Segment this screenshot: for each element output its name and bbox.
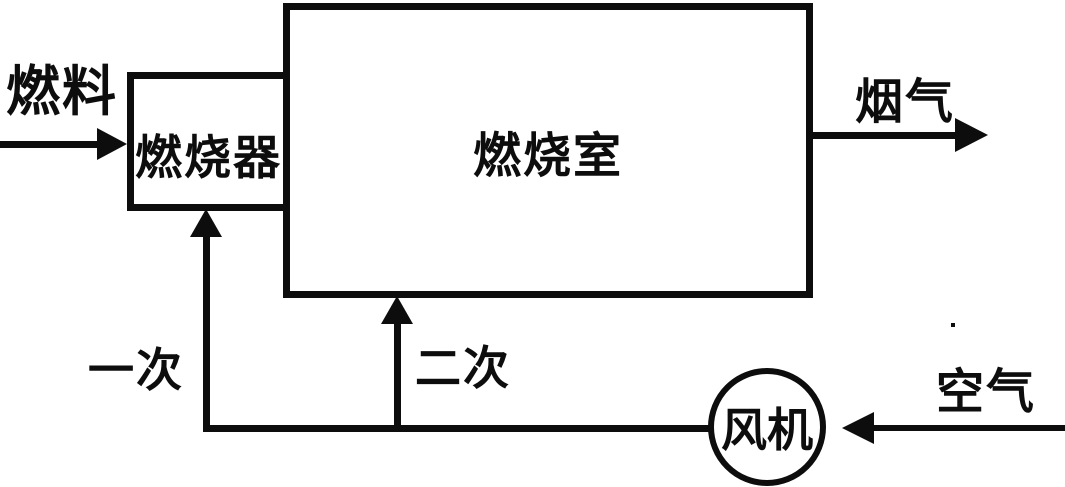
air-label: 空气 [936,368,1036,418]
fan-label: 风机 [721,394,813,460]
primary-air-label: 一次 [88,346,184,394]
flue-gas-arrow-line [810,132,958,139]
air-arrow-head-icon [842,412,874,444]
chamber-label: 燃烧室 [473,116,623,186]
secondary-air-line [394,312,401,432]
scan-artifact-dot [951,323,955,327]
primary-air-arrow-head-icon [190,209,222,237]
combustion-flow-diagram: 燃烧室 燃烧器 燃料 烟气 一次 二次 风机 空气 [0,0,1065,487]
burner-box: 燃烧器 [127,72,290,211]
chamber-box: 燃烧室 [283,3,813,298]
primary-air-line [203,226,210,432]
fuel-arrow-line [0,141,100,148]
air-arrow-line [872,425,1065,431]
fuel-label: 燃料 [6,64,118,121]
fan-circle: 风机 [708,368,826,486]
secondary-air-label: 二次 [415,344,511,392]
fuel-arrow-head-icon [97,128,127,160]
burner-label: 燃烧器 [135,119,282,188]
air-header-line [203,425,713,432]
secondary-air-arrow-head-icon [381,296,413,324]
flue-gas-label: 烟气 [855,78,955,128]
flue-gas-arrow-head-icon [955,118,988,152]
